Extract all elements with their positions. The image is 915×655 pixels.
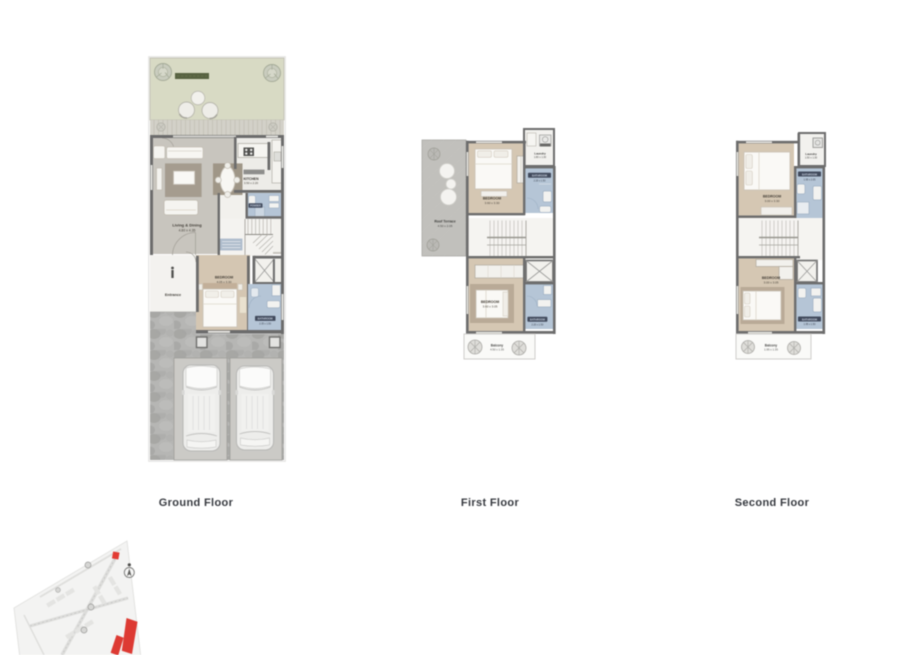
svg-text:3.00 x 3.30: 3.00 x 3.30 <box>765 199 780 203</box>
svg-text:Laundry: Laundry <box>534 152 546 156</box>
svg-text:4.50 x 2.05: 4.50 x 2.05 <box>438 224 453 228</box>
svg-text:1.80 x 1.30: 1.80 x 1.30 <box>534 156 547 159</box>
svg-text:BATHROOM: BATHROOM <box>532 174 547 178</box>
svg-text:BEDROOM: BEDROOM <box>483 197 501 201</box>
svg-text:1.50 x 1.30: 1.50 x 1.30 <box>805 157 818 160</box>
svg-text:BEDROOM: BEDROOM <box>762 276 780 280</box>
svg-text:3.50 x 2.20: 3.50 x 2.20 <box>244 181 259 185</box>
svg-text:2.20 x 1.50: 2.20 x 1.50 <box>531 323 543 326</box>
svg-text:BEDROOM: BEDROOM <box>215 276 233 280</box>
svg-text:1.95 x 1.35: 1.95 x 1.35 <box>764 348 778 352</box>
svg-text:BATHROOM: BATHROOM <box>258 317 273 321</box>
svg-text:Entrance: Entrance <box>165 293 181 297</box>
svg-text:BATHROOM: BATHROOM <box>802 172 817 176</box>
svg-text:Living & Dining: Living & Dining <box>172 223 202 228</box>
svg-text:Roof Terrace: Roof Terrace <box>434 220 455 224</box>
svg-text:3.60 x 3.30: 3.60 x 3.30 <box>485 201 500 205</box>
svg-text:2.35 x 1.50: 2.35 x 1.50 <box>259 323 271 326</box>
svg-text:Laundry: Laundry <box>805 152 817 156</box>
svg-text:4.80 x 4.35: 4.80 x 4.35 <box>179 229 196 233</box>
svg-text:1.95 x 2.05: 1.95 x 2.05 <box>804 178 816 181</box>
svg-text:3.00 x 3.05: 3.00 x 3.05 <box>764 281 779 285</box>
svg-text:3.60 x 3.05: 3.60 x 3.05 <box>483 305 498 309</box>
svg-text:BATHROOM: BATHROOM <box>802 317 817 321</box>
svg-text:2.20 x 1.50: 2.20 x 1.50 <box>534 180 546 183</box>
svg-text:BATHROOM: BATHROOM <box>530 318 545 322</box>
svg-text:4.50 x 1.35: 4.50 x 1.35 <box>490 348 504 352</box>
svg-text:1.95 x 1.50: 1.95 x 1.50 <box>804 323 816 326</box>
svg-text:BEDROOM: BEDROOM <box>481 300 499 304</box>
svg-text:POWDER: POWDER <box>250 205 261 208</box>
svg-text:BEDROOM: BEDROOM <box>763 195 781 199</box>
